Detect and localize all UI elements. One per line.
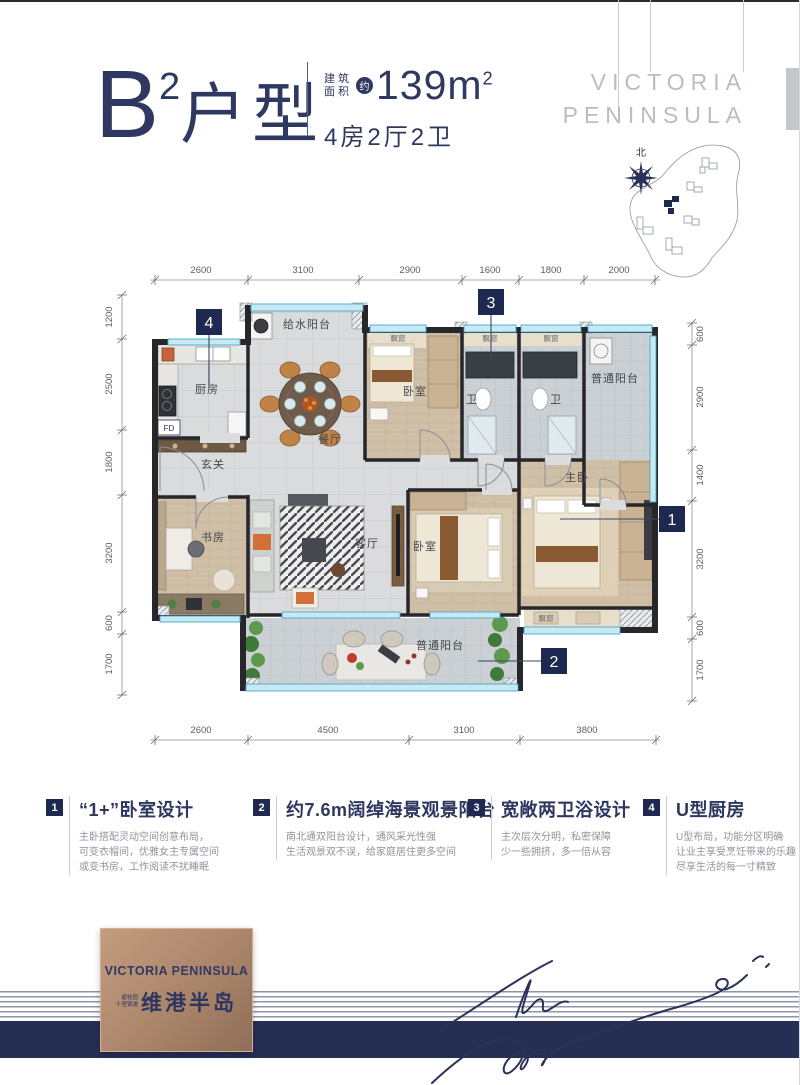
feature-4-desc: U型布局，功能分区明确 让业主享受烹饪带来的乐趣 尽享生活的每一寸精致 xyxy=(676,830,796,875)
site-plan-sketch xyxy=(630,145,740,277)
svg-text:3200: 3200 xyxy=(695,548,706,569)
feature-1-number: 1 xyxy=(46,799,63,816)
feature-4-title: U型厨房 xyxy=(676,796,796,822)
compass-north-label: 北 xyxy=(636,147,646,159)
site-plan-highlighted-building xyxy=(664,196,679,214)
label-master: 主卧 xyxy=(565,471,589,484)
brand-logo-en: VICTORIA PENINSULA xyxy=(105,964,249,978)
brand-wordmark-top: VICTORIA PENINSULA xyxy=(563,66,747,132)
label-bay-window: 飘窗 xyxy=(483,333,498,343)
svg-text:2500: 2500 xyxy=(104,373,115,394)
unit-superscript: 2 xyxy=(159,66,180,108)
feature-3-number: 3 xyxy=(468,799,485,816)
svg-text:3200: 3200 xyxy=(104,542,115,563)
feature-3: 3 宽敞两卫浴设计 主次层次分明，私密保障 少一些拥挤，多一倍从容 xyxy=(468,796,631,860)
label-bedroom-top: 卧室 xyxy=(403,384,427,398)
label-bay-window: 飘窗 xyxy=(391,333,406,343)
title-divider xyxy=(307,62,308,136)
feature-1-desc: 主卧搭配灵动空间创意布局， 可变衣帽间，优雅女主专属空间 或变书房，工作阅读不扰… xyxy=(79,830,219,875)
svg-text:3100: 3100 xyxy=(453,725,474,736)
svg-text:600: 600 xyxy=(104,615,115,631)
label-bath-2: 卫 xyxy=(550,394,562,406)
feature-2-title: 约7.6m阔绰海景观景阳台 xyxy=(286,796,496,822)
svg-text:3100: 3100 xyxy=(292,265,313,276)
label-bay-window: 飘窗 xyxy=(539,613,554,623)
label-bath-1: 卫 xyxy=(466,394,478,406)
feature-2-number: 2 xyxy=(253,799,270,816)
svg-text:1200: 1200 xyxy=(104,306,115,327)
feature-4: 4 U型厨房 U型布局，功能分区明确 让业主享受烹饪带来的乐趣 尽享生活的每一寸… xyxy=(643,796,796,875)
svg-text:4500: 4500 xyxy=(317,725,338,736)
svg-text:3: 3 xyxy=(487,295,496,312)
svg-text:2900: 2900 xyxy=(399,265,420,276)
page-edge-tab xyxy=(786,68,799,130)
svg-text:2900: 2900 xyxy=(695,386,706,407)
feature-4-number: 4 xyxy=(643,799,660,816)
label-kitchen: 厨房 xyxy=(195,383,219,396)
svg-text:1800: 1800 xyxy=(104,451,115,472)
label-dining: 餐厅 xyxy=(318,432,342,446)
svg-text:3800: 3800 xyxy=(576,725,597,736)
area-block: 建筑 面积 约 139m2 4房2厅2卫 xyxy=(324,62,494,152)
svg-text:2000: 2000 xyxy=(608,265,629,276)
label-balcony-bottom: 普通阳台 xyxy=(416,638,464,652)
svg-text:2: 2 xyxy=(550,654,559,671)
svg-text:2600: 2600 xyxy=(190,265,211,276)
svg-text:600: 600 xyxy=(695,620,706,636)
svg-text:1600: 1600 xyxy=(479,265,500,276)
feature-2-desc: 南北通双阳台设计，通风采光性强 生活观景双不误，给家庭居住更多空间 xyxy=(286,830,496,860)
svg-text:1400: 1400 xyxy=(695,464,706,485)
feature-1-title: “1+”卧室设计 xyxy=(79,796,219,822)
svg-text:4: 4 xyxy=(205,315,214,332)
area-value: 139m2 xyxy=(376,62,494,109)
label-balcony-top: 普通阳台 xyxy=(591,371,639,385)
svg-text:600: 600 xyxy=(695,326,706,342)
svg-text:1700: 1700 xyxy=(695,659,706,680)
label-living: 客厅 xyxy=(355,536,379,550)
feature-2: 2 约7.6m阔绰海景观景阳台 南北通双阳台设计，通风采光性强 生活观景双不误，… xyxy=(253,796,496,860)
label-bedroom-bottom: 卧室 xyxy=(413,539,437,553)
svg-text:2600: 2600 xyxy=(190,725,211,736)
feature-3-desc: 主次层次分明，私密保障 少一些拥挤，多一倍从容 xyxy=(501,830,631,860)
floorplan-poster: B2户型 建筑 面积 约 139m2 4房2厅2卫 VICTORIA PENIN… xyxy=(0,0,800,1085)
feature-1: 1 “1+”卧室设计 主卧搭配灵动空间创意布局， 可变衣帽间，优雅女主专属空间 … xyxy=(46,796,219,875)
label-supply-balcony: 给水阳台 xyxy=(283,317,331,331)
svg-text:1800: 1800 xyxy=(540,265,561,276)
label-bay-window: 飘窗 xyxy=(544,333,559,343)
top-border-line xyxy=(0,0,800,2)
label-study: 书房 xyxy=(201,531,225,544)
svg-text:1700: 1700 xyxy=(104,653,115,674)
guide-line xyxy=(650,0,651,72)
area-label: 建筑 面积 xyxy=(324,73,352,99)
approx-badge: 约 xyxy=(356,77,373,94)
brand-logo-box: VICTORIA PENINSULA 碧桂园 十里银滩 维港半岛 xyxy=(100,928,253,1052)
guide-line xyxy=(743,0,744,72)
label-foyer: 玄关 xyxy=(201,457,225,471)
feature-3-title: 宽敞两卫浴设计 xyxy=(501,796,631,822)
brand-logo-subtext: 碧桂园 十里银滩 xyxy=(116,995,138,1009)
label-fd: FD xyxy=(164,424,175,433)
svg-text:1: 1 xyxy=(668,512,677,529)
compass: 北 xyxy=(624,147,658,195)
signature-flourish xyxy=(420,915,780,1085)
floorplan-drawing: 北 xyxy=(0,140,800,780)
brand-logo-cn: 维港半岛 xyxy=(141,987,237,1017)
